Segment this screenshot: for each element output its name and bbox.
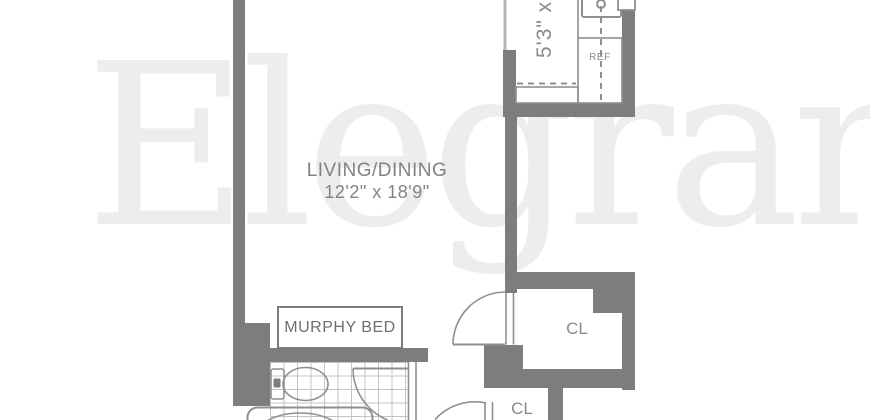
wall-bottom-right-stub	[548, 388, 563, 420]
wall-left	[233, 0, 245, 406]
wall-entry-pier	[484, 345, 523, 388]
wall-closet-bottom	[523, 369, 635, 388]
room-dimensions-living-dining: 12'2" x 18'9"	[287, 182, 467, 203]
refrigerator-label: REF	[578, 52, 622, 63]
wall-kitchen-right	[622, 0, 635, 117]
wall-left-column	[245, 323, 270, 406]
wall-living-right	[505, 117, 517, 293]
door-swing-entry	[435, 402, 493, 420]
floor-plan: Elegran	[0, 0, 870, 420]
closet-lower-label: CL	[500, 399, 544, 419]
watermark-text: Elegran	[85, 35, 870, 260]
murphy-bed: MURPHY BED	[277, 306, 403, 349]
kitchen-dimensions-label: 5'3" x	[533, 1, 557, 58]
wall-closet-notch	[593, 289, 622, 313]
kitchen-sink-icon	[582, 0, 621, 17]
murphy-bed-label: MURPHY BED	[284, 319, 395, 337]
room-label-living-dining: LIVING/DINING	[287, 160, 467, 182]
door-swing-closet	[453, 292, 514, 345]
wall-bathroom-top	[268, 348, 428, 362]
closet-upper-label: CL	[557, 319, 597, 339]
bathroom-tile-floor	[270, 362, 408, 420]
wall-closet-top	[505, 272, 635, 289]
wall-kitchen-bottom	[503, 103, 635, 117]
